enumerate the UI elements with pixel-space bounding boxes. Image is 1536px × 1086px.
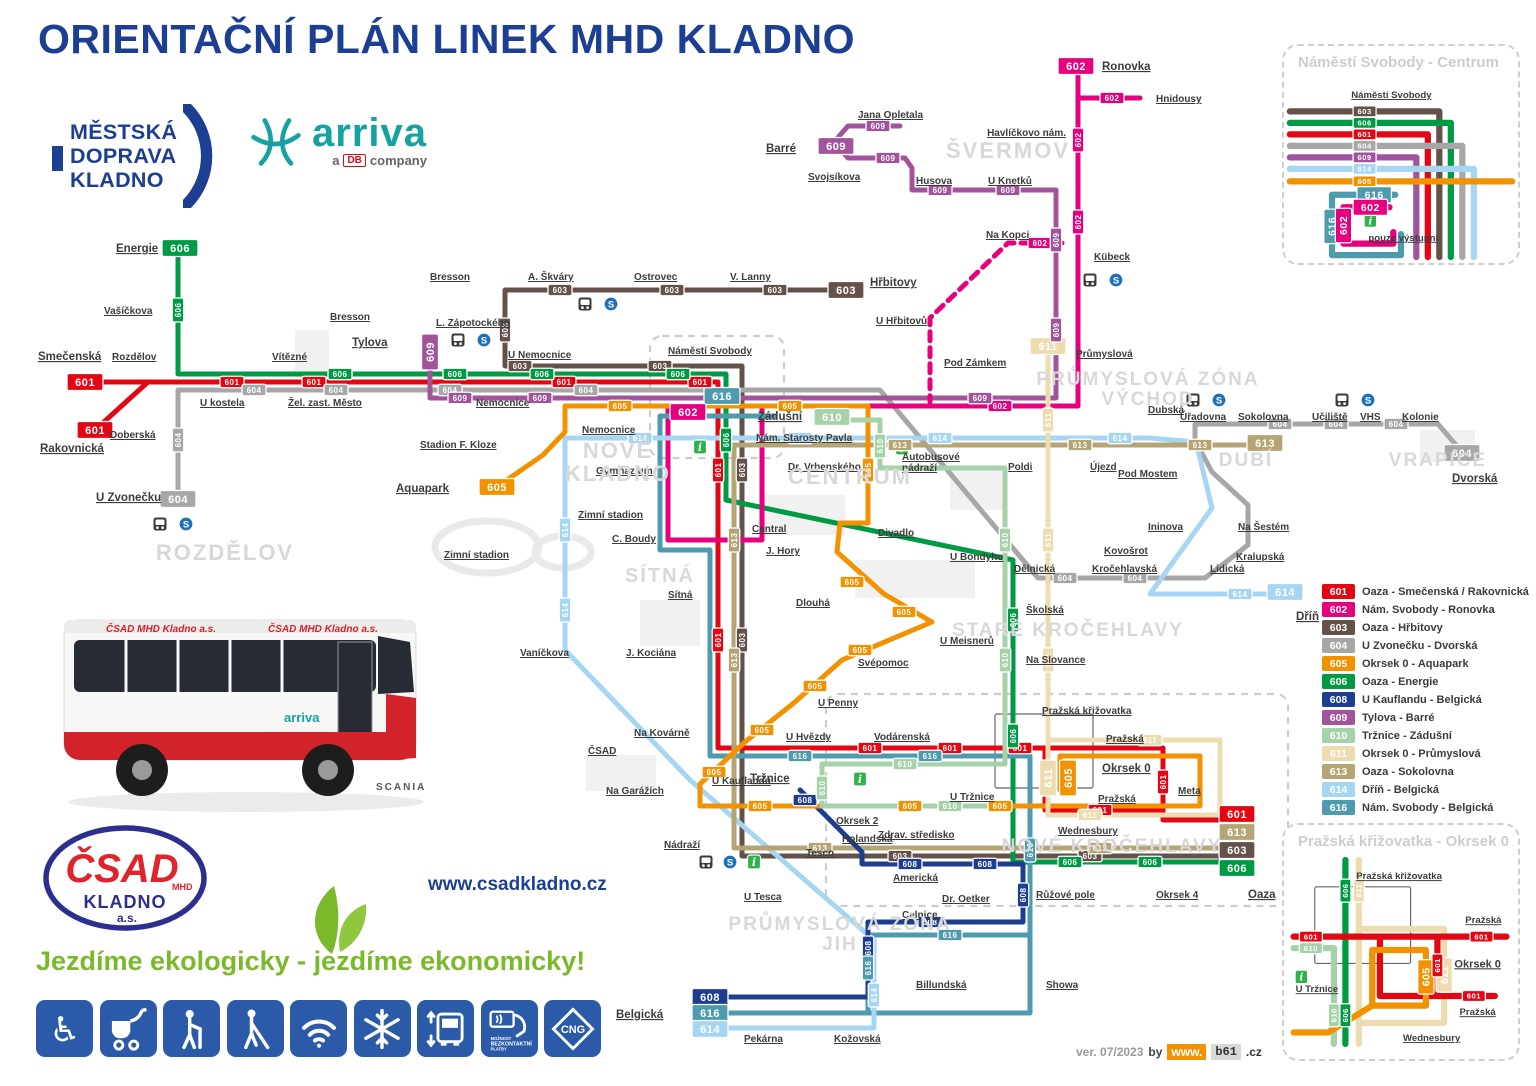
line-badge-616: 616 xyxy=(918,750,942,762)
legend-item-605: 605Okrsek 0 - Aquapark xyxy=(1322,656,1524,671)
legend-item-601: 601Oaza - Smečenská / Rakovnická xyxy=(1322,584,1524,599)
line-badge-601: 601 xyxy=(712,458,724,482)
line-badge-603: 603 xyxy=(660,284,684,296)
stop-label: Tylova xyxy=(352,337,388,349)
line-badge-608: 608 xyxy=(973,858,997,870)
arriva-sub-a: a xyxy=(332,153,339,168)
svg-text:605: 605 xyxy=(993,802,1008,811)
line-badge-606: 606 xyxy=(162,240,198,257)
svg-text:606: 606 xyxy=(1227,863,1247,875)
svg-text:606: 606 xyxy=(333,370,348,379)
line-badge-601: 601 xyxy=(858,742,882,754)
stop-label: Vašíčkova xyxy=(104,306,153,317)
svg-text:605: 605 xyxy=(1421,967,1433,986)
svg-text:603: 603 xyxy=(738,633,747,648)
stop-label: Hnidousy xyxy=(1156,94,1202,105)
mdk-line-3: KLADNO xyxy=(70,168,177,192)
stop-label: Náměstí Svobody xyxy=(1351,90,1432,101)
svg-text:606: 606 xyxy=(1063,858,1078,867)
svg-text:605: 605 xyxy=(613,402,628,411)
legend-item-label: Dříň - Belgická xyxy=(1362,784,1439,796)
stop-label: Sítná xyxy=(668,590,693,601)
line-badge-605: 605 xyxy=(848,644,872,656)
stop-label: Energie xyxy=(116,243,158,255)
info-icon: i xyxy=(694,440,707,454)
blind-icon xyxy=(227,1000,284,1057)
legend-item-label: Oaza - Hřbitovy xyxy=(1362,622,1443,634)
line-badge-609: 609 xyxy=(866,120,890,132)
stop-label: Central xyxy=(752,524,787,535)
stop-label: Kožovská xyxy=(834,1034,881,1045)
stop-label: Okrsek 2 xyxy=(836,816,879,827)
svg-text:610: 610 xyxy=(943,802,958,811)
svg-text:616: 616 xyxy=(864,961,873,976)
line-badge-601: 601 xyxy=(302,376,326,388)
line-badge-606: 606 xyxy=(530,368,554,380)
inset-title: Náměstí Svobody - Centrum xyxy=(1298,54,1518,71)
stop-label: Sokolovna xyxy=(1238,412,1289,423)
line-badge-608: 608 xyxy=(898,858,922,870)
svg-text:601: 601 xyxy=(85,425,105,437)
inset-title: Pražská křižovatka - Okrsek 0 xyxy=(1298,833,1518,850)
district-label: NOVÉ KROČEHLAVY xyxy=(1002,835,1223,857)
line-badge-606: 606 xyxy=(1340,1004,1351,1027)
line-badge-601: 601 xyxy=(220,376,244,388)
stop-label: Průmyslová xyxy=(1076,348,1133,360)
svg-text:605: 605 xyxy=(783,402,798,411)
stop-label: Billundská xyxy=(916,980,967,991)
stop-label: Pražská xyxy=(1460,1007,1497,1018)
svg-text:601: 601 xyxy=(1159,775,1168,790)
stop-label: Dělnická xyxy=(1014,564,1056,575)
mdk-line-1: MĚSTSKÁ xyxy=(70,120,177,144)
stop-label: Pražská křižovatka xyxy=(1356,871,1442,882)
district-label: CENTRUM xyxy=(788,464,912,489)
svg-text:603: 603 xyxy=(513,362,528,371)
stop-label: U Tržnice xyxy=(950,792,995,803)
stop-label: Ronovka xyxy=(1102,61,1151,73)
line-badge-614: 614 xyxy=(692,1021,728,1038)
svg-text:611: 611 xyxy=(1043,768,1055,787)
line-badge-605: 605 xyxy=(748,800,772,812)
arriva-subtitle: a DB company xyxy=(312,153,427,168)
svg-text:S: S xyxy=(183,519,189,530)
stop-label: Zimní stadion xyxy=(578,510,643,521)
line-badge-605: 605 xyxy=(479,479,515,496)
legend-item-611: 611Okrsek 0 - Průmyslová xyxy=(1322,746,1524,761)
district-label: PRŮMYSLOVÁ ZÓNAJIH xyxy=(728,912,951,955)
svg-text:609: 609 xyxy=(826,141,846,153)
svg-text:613: 613 xyxy=(1073,441,1088,450)
svg-text:CNG: CNG xyxy=(560,1024,584,1036)
line-badge-606: 606 xyxy=(1138,856,1162,868)
line-badge-606: 606 xyxy=(1353,117,1376,128)
stop-label: Vaníčkova xyxy=(520,648,569,659)
page-title: ORIENTAČNÍ PLÁN LINEK MHD KLADNO xyxy=(38,16,855,63)
svg-text:605: 605 xyxy=(753,802,768,811)
stop-label: Kübeck xyxy=(1094,252,1131,263)
suburban-rail-icon: S xyxy=(1109,273,1123,287)
stop-label: Na Kovárně xyxy=(634,728,690,739)
line-badge-603: 603 xyxy=(1353,106,1376,117)
stop-label: Okrsek 0 xyxy=(1454,958,1501,970)
legend-item-616: 616Nám. Svobody - Belgická xyxy=(1322,800,1524,815)
arriva-text-block: arriva a DB company xyxy=(312,115,427,168)
svg-text:614: 614 xyxy=(1233,590,1248,599)
inset-prazska-krizovatka-map: i601610606611606610605611601601601Pražsk… xyxy=(1286,852,1516,1050)
line-badge-601: 601 xyxy=(1353,129,1376,140)
stop-label: Náměstí Svobody xyxy=(668,346,752,357)
stop-label: Žel. zast. Město xyxy=(288,396,362,409)
svg-text:608: 608 xyxy=(978,860,993,869)
line-badge-616: 616 xyxy=(692,1005,728,1022)
csad-kladno-text: KLADNO xyxy=(84,892,167,912)
line-badge-601: 601 xyxy=(1299,931,1322,942)
csad-mhd-text: MHD xyxy=(172,882,193,892)
inset-namesti-svobody: Náměstí Svobody - Centrum i6036066016046… xyxy=(1282,44,1520,265)
svg-text:609: 609 xyxy=(453,394,468,403)
line-badge-602: 602 xyxy=(1028,237,1052,249)
cng-icon: CNG xyxy=(544,1000,601,1057)
svg-text:S: S xyxy=(608,299,614,310)
line-badge-604: 604 xyxy=(172,428,184,452)
line-badge-611: 611 xyxy=(1040,760,1057,796)
svg-text:i: i xyxy=(858,773,862,786)
stop-label: U Hvězdy xyxy=(786,732,831,743)
svg-text:616: 616 xyxy=(793,752,808,761)
svg-text:603: 603 xyxy=(738,463,747,478)
svg-text:613: 613 xyxy=(1255,438,1275,450)
svg-text:601: 601 xyxy=(1433,958,1442,972)
svg-text:601: 601 xyxy=(557,378,572,387)
senior-icon xyxy=(163,1000,220,1057)
district-label: ŠVERMOV xyxy=(946,138,1070,163)
db-logo: DB xyxy=(343,154,365,167)
line-badge-614: 614 xyxy=(868,983,880,1007)
line-badge-614: 614 xyxy=(559,518,571,542)
line-badge-602: 602 xyxy=(1058,58,1094,75)
line-badge-603: 603 xyxy=(1322,620,1355,635)
stop-label: Barré xyxy=(766,143,796,155)
stop-label: J. Hory xyxy=(766,546,800,557)
version-text: ver. 07/2023 xyxy=(1076,1045,1143,1059)
stop-label: Pekárna xyxy=(744,1034,783,1045)
stop-label: Růžové pole xyxy=(1036,889,1095,901)
stop-label: Lidická xyxy=(1210,564,1245,575)
svg-text:611: 611 xyxy=(1044,533,1053,547)
svg-text:614: 614 xyxy=(1113,434,1128,443)
stop-label: V. Lanny xyxy=(730,272,771,283)
stop-label: Na Kopci xyxy=(986,230,1030,241)
line-badge-603: 603 xyxy=(548,284,572,296)
legend-item-label: Okrsek 0 - Průmyslová xyxy=(1362,748,1481,760)
bus-stop-icon xyxy=(1084,274,1097,287)
svg-text:606: 606 xyxy=(170,243,190,255)
line-badge-610: 610 xyxy=(816,776,828,800)
stop-label: Pod Zámkem xyxy=(944,358,1006,369)
svg-text:604: 604 xyxy=(247,386,262,395)
line-badge-610: 610 xyxy=(814,409,850,426)
line-badge-616: 616 xyxy=(1322,800,1355,815)
line-badge-602: 602 xyxy=(1100,92,1124,104)
ghost-building xyxy=(640,600,700,646)
suburban-rail-icon: S xyxy=(1212,393,1226,407)
line-badge-610: 610 xyxy=(1299,943,1322,954)
stop-label: Školská xyxy=(1026,603,1064,616)
stop-label: Na Šestém xyxy=(1238,520,1289,533)
stop-label: Vítězné xyxy=(272,352,307,363)
svg-text:605: 605 xyxy=(897,608,912,617)
stop-label: A. Škváry xyxy=(528,270,574,283)
svg-text:611: 611 xyxy=(1083,811,1097,820)
info-icon: i xyxy=(1295,970,1307,983)
stop-label: Na Slovance xyxy=(1026,655,1086,666)
svg-text:610: 610 xyxy=(898,760,913,769)
svg-text:601: 601 xyxy=(693,378,708,387)
line-badge-606: 606 xyxy=(666,368,690,380)
district-label: VRAPICE xyxy=(1389,450,1487,471)
stop-label: U Tržnice xyxy=(1296,984,1339,995)
bus-operator-text-2: ČSAD MHD Kladno a.s. xyxy=(268,622,378,635)
stop-label: Zimní stadion xyxy=(444,550,509,561)
line-badge-605: 605 xyxy=(750,724,774,736)
stop-label: C. Boudy xyxy=(612,534,656,545)
bus-arriva-text: arriva xyxy=(284,710,320,725)
line-badge-614: 614 xyxy=(1267,584,1303,601)
stop-label: Divadlo xyxy=(878,528,914,539)
line-badge-614: 614 xyxy=(559,598,571,622)
suburban-rail-icon: S xyxy=(604,297,618,311)
line-badge-609: 609 xyxy=(1353,152,1376,163)
stop-label: Bresson xyxy=(330,312,370,323)
svg-text:602: 602 xyxy=(1033,239,1048,248)
svg-text:610: 610 xyxy=(818,781,827,796)
stop-label: Ostrovec xyxy=(634,272,678,283)
stop-label: Kralupská xyxy=(1236,552,1285,563)
svg-text:602: 602 xyxy=(1361,202,1380,214)
stop-label: Dvorská xyxy=(1452,473,1498,485)
line-badge-601: 601 xyxy=(712,628,724,652)
line-badge-601: 601 xyxy=(552,376,576,388)
line-badge-606: 606 xyxy=(1058,856,1082,868)
line-badge-610: 610 xyxy=(999,648,1011,672)
line-badge-604: 604 xyxy=(1053,572,1077,584)
stop-label: Wednesbury xyxy=(1403,1033,1461,1044)
svg-text:608: 608 xyxy=(1019,888,1028,903)
line-badge-610: 610 xyxy=(874,434,886,458)
stop-label: Pražská xyxy=(1098,794,1136,805)
line-badge-609: 609 xyxy=(448,392,472,404)
svg-text:609: 609 xyxy=(871,122,886,131)
stop-label: Okrsek 0 xyxy=(1102,763,1151,775)
line-badge-614: 614 xyxy=(928,432,952,444)
svg-text:602: 602 xyxy=(1066,61,1086,73)
svg-text:604: 604 xyxy=(1357,142,1371,151)
legend-item-604: 604U Zvonečku - Dvorská xyxy=(1322,638,1524,653)
svg-text:616: 616 xyxy=(923,752,938,761)
svg-text:611: 611 xyxy=(1143,736,1157,745)
line-badge-613: 613 xyxy=(728,528,740,552)
bus-stop-icon xyxy=(154,518,167,531)
line-badge-609: 609 xyxy=(528,392,552,404)
line-badge-603: 603 xyxy=(828,282,864,299)
stop-label: U Penny xyxy=(818,698,858,709)
stop-label: Úřadovna xyxy=(1180,410,1227,423)
mdk-logo: MĚSTSKÁ DOPRAVA KLADNO xyxy=(52,104,217,208)
legend: 601Oaza - Smečenská / Rakovnická602Nám. … xyxy=(1322,584,1524,844)
svg-text:613: 613 xyxy=(1193,441,1208,450)
svg-text:603: 603 xyxy=(768,286,783,295)
line-badge-616: 616 xyxy=(788,750,812,762)
stop-label: Americká xyxy=(893,873,938,884)
svg-text:614: 614 xyxy=(933,434,948,443)
stop-label: J. Kociána xyxy=(626,648,676,659)
line-badge-613: 613 xyxy=(1219,824,1255,841)
stop-label: L. Zápotockého xyxy=(436,318,510,329)
stop-label: Belgická xyxy=(616,1009,664,1021)
svg-text:S: S xyxy=(481,335,487,346)
svg-text:604: 604 xyxy=(1058,574,1073,583)
stop-label: U Nemocnice xyxy=(508,350,572,361)
bus-stop-icon xyxy=(452,334,465,347)
line-badge-616: 616 xyxy=(862,956,874,980)
line-badge-602: 602 xyxy=(1353,199,1388,215)
svg-text:605: 605 xyxy=(808,682,823,691)
legend-item-label: U Zvonečku - Dvorská xyxy=(1362,640,1478,652)
svg-text:606: 606 xyxy=(1009,729,1018,744)
svg-text:606: 606 xyxy=(1143,858,1158,867)
svg-text:609: 609 xyxy=(973,394,988,403)
wifi-icon xyxy=(290,1000,347,1057)
svg-text:608: 608 xyxy=(864,941,873,956)
svg-text:604: 604 xyxy=(329,386,344,395)
csad-logo-image: ČSAD MHD KLADNO a.s. xyxy=(40,824,210,936)
district-label: ROZDĚLOV xyxy=(156,540,294,565)
line-badge-609: 609 xyxy=(818,138,854,155)
legend-item-603: 603Oaza - Hřbitovy xyxy=(1322,620,1524,635)
line-badge-601: 601 xyxy=(1432,954,1443,977)
svg-text:601: 601 xyxy=(1467,992,1481,1001)
district-label: STARÉ KROČEHLAVY xyxy=(952,619,1184,641)
arriva-name: arriva xyxy=(312,115,427,151)
legend-item-label: Tržnice - Zádušní xyxy=(1362,730,1452,742)
stop-label: Pražská křižovatka xyxy=(1042,706,1132,717)
svg-text:608: 608 xyxy=(798,796,813,805)
svg-text:S: S xyxy=(1113,275,1119,286)
line-badge-613: 613 xyxy=(728,648,740,672)
version-line: ver. 07/2023 by www. b61 .cz xyxy=(1076,1044,1262,1060)
line-badge-601: 601 xyxy=(1322,584,1355,599)
svg-text:605: 605 xyxy=(853,646,868,655)
line-badge-613: 613 xyxy=(1247,435,1283,452)
line-badge-606: 606 xyxy=(443,368,467,380)
feature-icons-row: ♿ xyxy=(36,1000,601,1057)
svg-text:610: 610 xyxy=(1001,653,1010,668)
svg-text:610: 610 xyxy=(876,439,885,454)
line-badge-613: 613 xyxy=(1322,764,1355,779)
stop-label: Pod Mostem xyxy=(1118,469,1178,480)
svg-text:604: 604 xyxy=(579,386,594,395)
svg-text:601: 601 xyxy=(307,378,322,387)
svg-text:606: 606 xyxy=(1357,119,1371,128)
legend-item-602: 602Nám. Svobody - Ronovka xyxy=(1322,602,1524,617)
line-badge-605: 605 xyxy=(840,576,864,588)
b61-cz: .cz xyxy=(1246,1045,1262,1059)
stop-label: Jana Opletala xyxy=(858,110,923,121)
stop-label: Kolonie xyxy=(1402,412,1439,423)
stop-label: Kovošrot xyxy=(1104,546,1149,557)
bus-stop-icon xyxy=(579,298,592,311)
line-badge-602: 602 xyxy=(1072,210,1084,234)
line-badge-605: 605 xyxy=(1322,656,1355,671)
line-badge-610: 610 xyxy=(893,758,917,770)
route-616 xyxy=(868,935,1030,1013)
stop-label: Nádraží xyxy=(664,840,701,851)
line-badge-606: 606 xyxy=(172,298,184,322)
svg-text:611: 611 xyxy=(1355,883,1364,897)
arriva-logo: arriva a DB company xyxy=(248,112,427,170)
svg-text:603: 603 xyxy=(653,362,668,371)
legend-item-label: Tylova - Barré xyxy=(1362,712,1435,724)
svg-text:609: 609 xyxy=(1357,153,1371,162)
svg-text:611: 611 xyxy=(1044,413,1053,427)
line-badge-614: 614 xyxy=(1108,432,1132,444)
line-badge-605: 605 xyxy=(1060,760,1077,796)
suburban-rail-icon: S xyxy=(477,333,491,347)
version-by: by xyxy=(1148,1045,1162,1059)
svg-text:603: 603 xyxy=(1227,845,1247,857)
stop-label: Ininova xyxy=(1148,522,1183,533)
svg-text:604: 604 xyxy=(174,433,183,448)
svg-text:616: 616 xyxy=(700,1008,720,1020)
stop-label: Stadion F. Kloze xyxy=(420,440,497,451)
line-badge-605: 605 xyxy=(1353,176,1376,187)
svg-text:S: S xyxy=(727,857,733,868)
legend-item-610: 610Tržnice - Zádušní xyxy=(1322,728,1524,743)
svg-text:S: S xyxy=(1216,395,1222,406)
svg-text:602: 602 xyxy=(1074,133,1083,148)
svg-text:602: 602 xyxy=(1105,94,1120,103)
svg-text:605: 605 xyxy=(1063,768,1075,788)
bus-stop-icon xyxy=(700,856,713,869)
page: SSSSSSSiiii60160160460660960561060360960… xyxy=(0,0,1536,1086)
svg-text:609: 609 xyxy=(881,154,896,163)
line-badge-603: 603 xyxy=(1219,842,1255,859)
svg-text:610: 610 xyxy=(1001,533,1010,548)
line-badge-605: 605 xyxy=(892,606,916,618)
legend-item-label: Oaza - Smečenská / Rakovnická xyxy=(1362,586,1529,598)
svg-text:602: 602 xyxy=(1074,215,1083,230)
suburban-rail-icon: S xyxy=(1361,393,1375,407)
legend-item-label: Oaza - Energie xyxy=(1362,676,1438,688)
svg-text:601: 601 xyxy=(863,744,878,753)
stop-label: Svépomoc xyxy=(858,658,909,669)
line-badge-606: 606 xyxy=(1219,860,1255,877)
legend-item-label: Nám. Svobody - Ronovka xyxy=(1362,604,1495,616)
svg-text:606: 606 xyxy=(722,433,731,448)
line-badge-609: 609 xyxy=(968,392,992,404)
svg-text:616: 616 xyxy=(712,391,732,403)
stop-label: Rakovnická xyxy=(40,443,105,455)
line-badge-611: 611 xyxy=(1042,528,1054,552)
stop-label: Husova xyxy=(916,176,953,187)
bus-photo: ČSAD MHD Kladno a.s. ČSAD MHD Kladno a.s… xyxy=(46,582,444,827)
stop-label: Oaza xyxy=(1248,889,1276,901)
line-badge-606: 606 xyxy=(1322,674,1355,689)
line-badge-604: 604 xyxy=(1353,140,1376,151)
stroller-icon xyxy=(100,1000,157,1057)
line-badge-606: 606 xyxy=(720,428,732,452)
